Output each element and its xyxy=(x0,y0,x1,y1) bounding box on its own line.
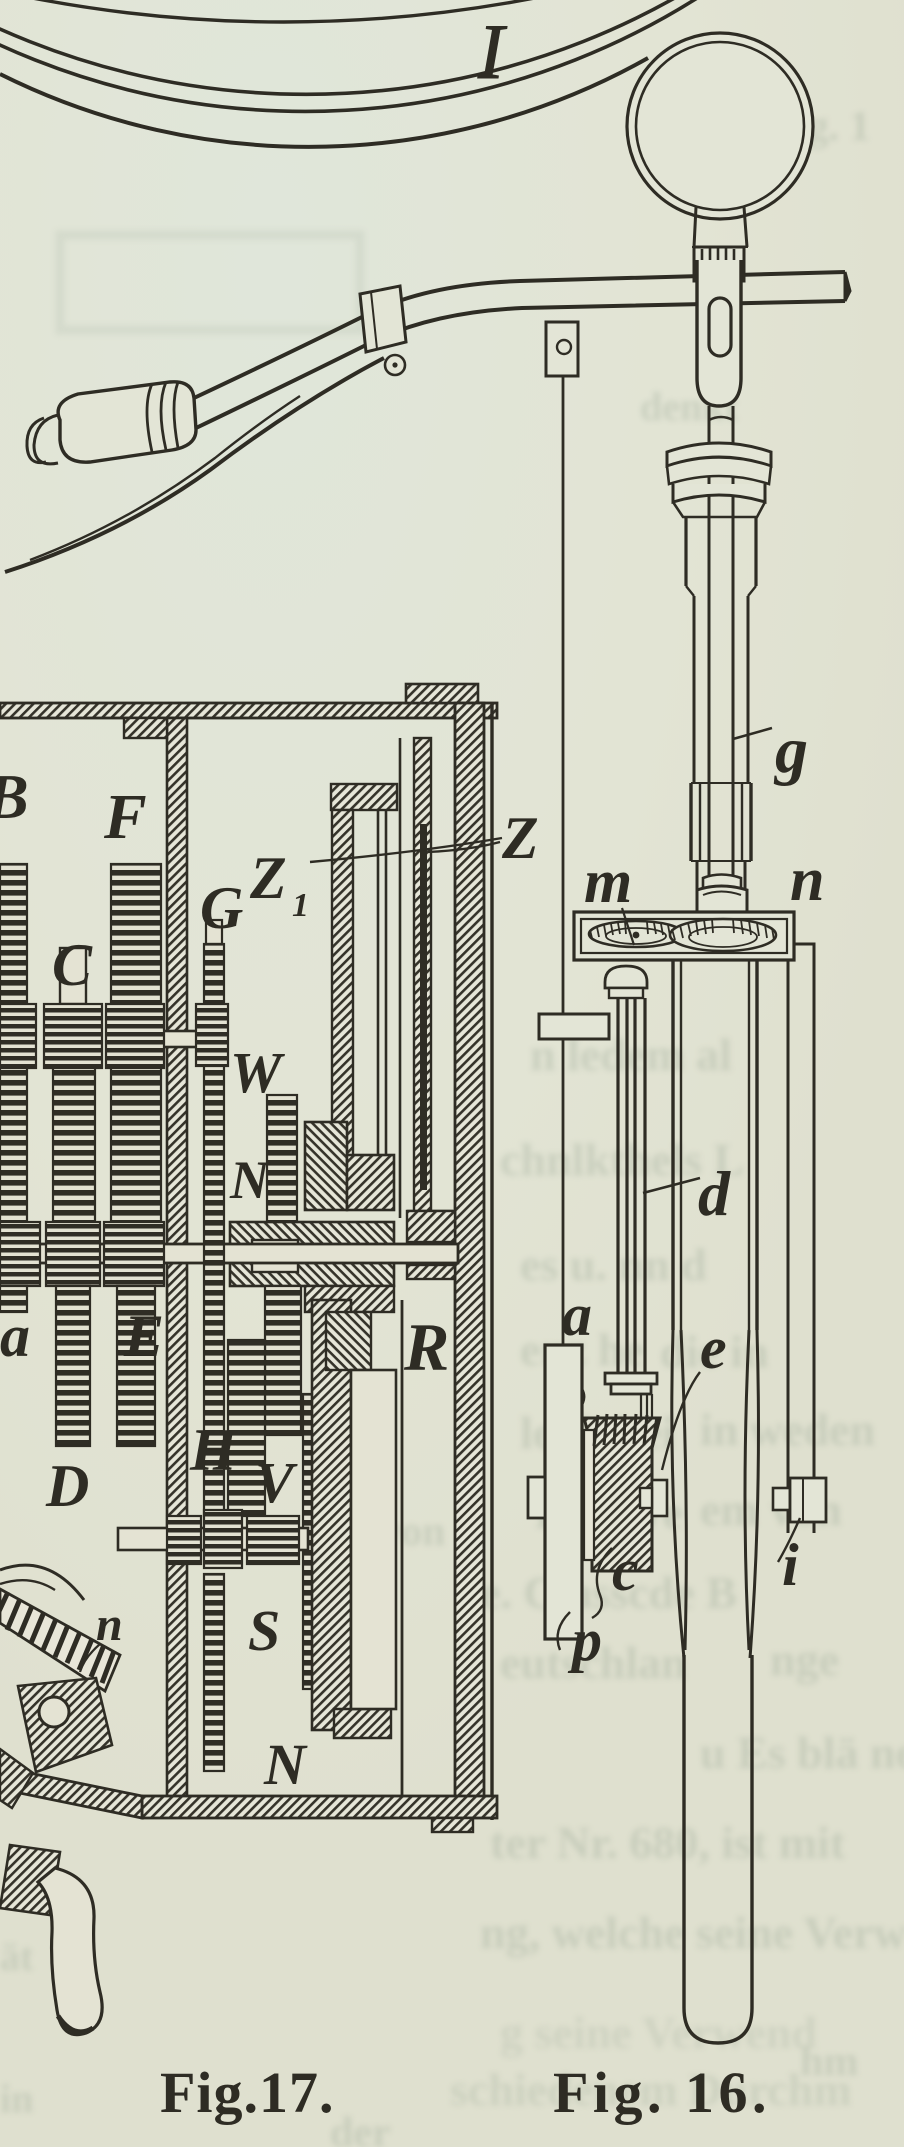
svg-text:u Es blä nel: u Es blä nel xyxy=(700,1727,904,1778)
svg-text:e. Classcde B: e. Classcde B xyxy=(480,1567,737,1618)
svg-text:g seine Verwend: g seine Verwend xyxy=(500,2007,817,2058)
svg-text:N: N xyxy=(263,1732,308,1797)
svg-text:es u. nn d: es u. nn d xyxy=(520,1239,707,1290)
svg-text:ng, welche seine Verw: ng, welche seine Verw xyxy=(480,1907,904,1958)
svg-text:Fig. 16.: Fig. 16. xyxy=(553,2060,771,2125)
svg-text:I: I xyxy=(477,8,508,95)
svg-text:d: d xyxy=(698,1158,731,1229)
svg-text:N: N xyxy=(229,1150,271,1210)
svg-text:c: c xyxy=(612,1537,639,1603)
svg-text:V: V xyxy=(255,1450,298,1515)
svg-text:a: a xyxy=(0,1303,30,1369)
svg-text:S: S xyxy=(248,1598,280,1663)
svg-text:hm: hm xyxy=(800,2039,858,2085)
svg-text:G: G xyxy=(200,875,243,941)
svg-text:m: m xyxy=(584,848,632,916)
svg-text:ät: ät xyxy=(0,1934,34,1979)
svg-text:ter Nr. 680, ist mit: ter Nr. 680, ist mit xyxy=(490,1817,846,1868)
svg-text:der: der xyxy=(330,2110,391,2147)
svg-text:Fig.17.: Fig.17. xyxy=(160,2060,335,2125)
svg-text:Z: Z xyxy=(249,845,287,911)
svg-text:Z: Z xyxy=(501,805,539,871)
svg-text:nge: nge xyxy=(770,1634,839,1685)
svg-text:C: C xyxy=(52,932,93,998)
svg-text:E: E xyxy=(123,1303,164,1369)
svg-text:n: n xyxy=(790,846,824,914)
svg-text:1: 1 xyxy=(292,887,309,924)
svg-text:a: a xyxy=(562,1282,592,1348)
svg-text:H: H xyxy=(189,1417,239,1483)
svg-text:n: n xyxy=(96,1598,123,1651)
svg-text:in: in xyxy=(0,2076,33,2121)
svg-text:F: F xyxy=(103,781,147,852)
svg-text:e: e xyxy=(700,1315,727,1381)
svg-text:R: R xyxy=(403,1309,449,1385)
svg-text:g: g xyxy=(773,714,808,787)
svg-text:i: i xyxy=(782,1532,799,1598)
svg-text:D: D xyxy=(45,1453,89,1519)
svg-text:p: p xyxy=(567,1607,602,1673)
svg-text:B: B xyxy=(0,761,29,832)
svg-text:W: W xyxy=(230,1040,285,1105)
